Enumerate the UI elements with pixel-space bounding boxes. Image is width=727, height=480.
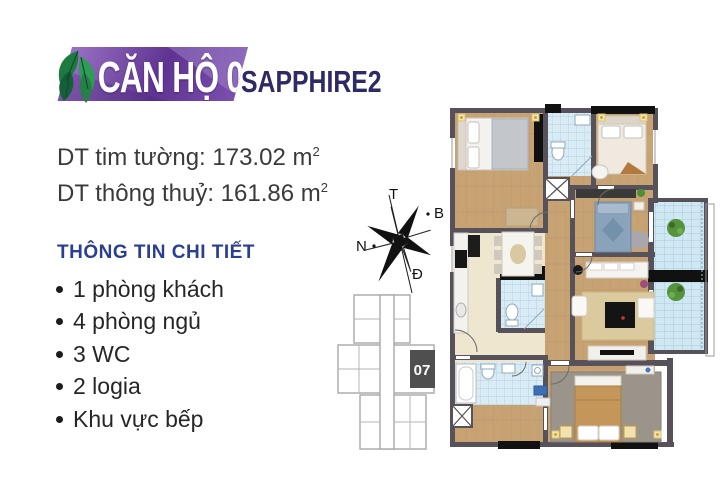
sink [456,303,466,317]
pillow [468,147,479,168]
fridge [468,235,480,257]
bullet-icon [56,318,63,325]
keyplan-unit-label: 07 [414,362,431,379]
pillow [468,122,479,143]
compass-label-b: B [434,205,444,222]
bullet-icon [56,286,63,293]
headboard [575,376,621,386]
plant [637,189,645,197]
shoe-cabinet [534,386,547,395]
sink [575,115,590,125]
pouf [638,298,654,318]
floorplan [448,100,720,455]
nightstand [624,426,636,438]
coffee-table [605,302,635,328]
details-heading: THÔNG TIN CHI TIẾT [57,242,255,264]
blanket [492,119,528,169]
area-net: DT thông thuỷ: 161.86 m2 [57,173,328,209]
armchair [592,165,608,179]
apartment-factsheet-page: CĂN HỘ 07 SAPPHIRE2 DT tim tường: 173.02… [0,0,727,480]
bullet-icon [56,416,63,423]
desk [576,189,636,198]
wardrobe-top [591,106,655,114]
project-name: SAPPHIRE2 [241,64,382,100]
sink [532,284,543,296]
bedroom2-furniture [592,116,646,179]
square-sup: 2 [312,144,319,159]
unit-title: CĂN HỘ 07 [98,53,248,101]
bullet-icon [56,351,63,358]
list-item: 1 phòng khách [56,273,224,306]
list-item: 4 phòng ngủ [56,306,224,339]
pillow [624,126,642,138]
area-gross: DT tim tường: 173.02 m2 [57,137,328,173]
logia-divider [648,270,708,282]
area-figures: DT tim tường: 173.02 m2 DT thông thuỷ: 1… [57,137,328,209]
pillow [578,426,598,440]
bedroom4-furniture [551,366,661,442]
closet [506,208,538,226]
compass-label-t: T [389,186,398,203]
cooktop [455,250,467,268]
armchair [572,296,587,316]
counter [454,233,468,333]
list-item: 3 WC [56,338,224,371]
tv [600,350,634,355]
pillow [602,126,620,138]
square-sup: 2 [321,180,328,195]
washer [532,365,543,376]
nightstand [560,426,572,438]
details-list: 1 phòng khách 4 phòng ngủ 3 WC 2 logia K… [56,273,224,436]
building-keyplan: 07 [332,292,448,454]
pillow [599,426,619,440]
sink [502,364,515,373]
list-item: Khu vực bếp [56,403,224,436]
compass-rose-icon: T B N Đ [352,183,448,301]
compass-label-d: Đ [412,266,423,283]
list-item: 2 logia [56,371,224,404]
leaf-icon [48,43,114,109]
compass-label-n: N [356,238,367,255]
pillow [598,204,628,213]
bullet-icon [56,383,63,390]
flower-pot [640,280,648,288]
speaker [573,265,583,275]
